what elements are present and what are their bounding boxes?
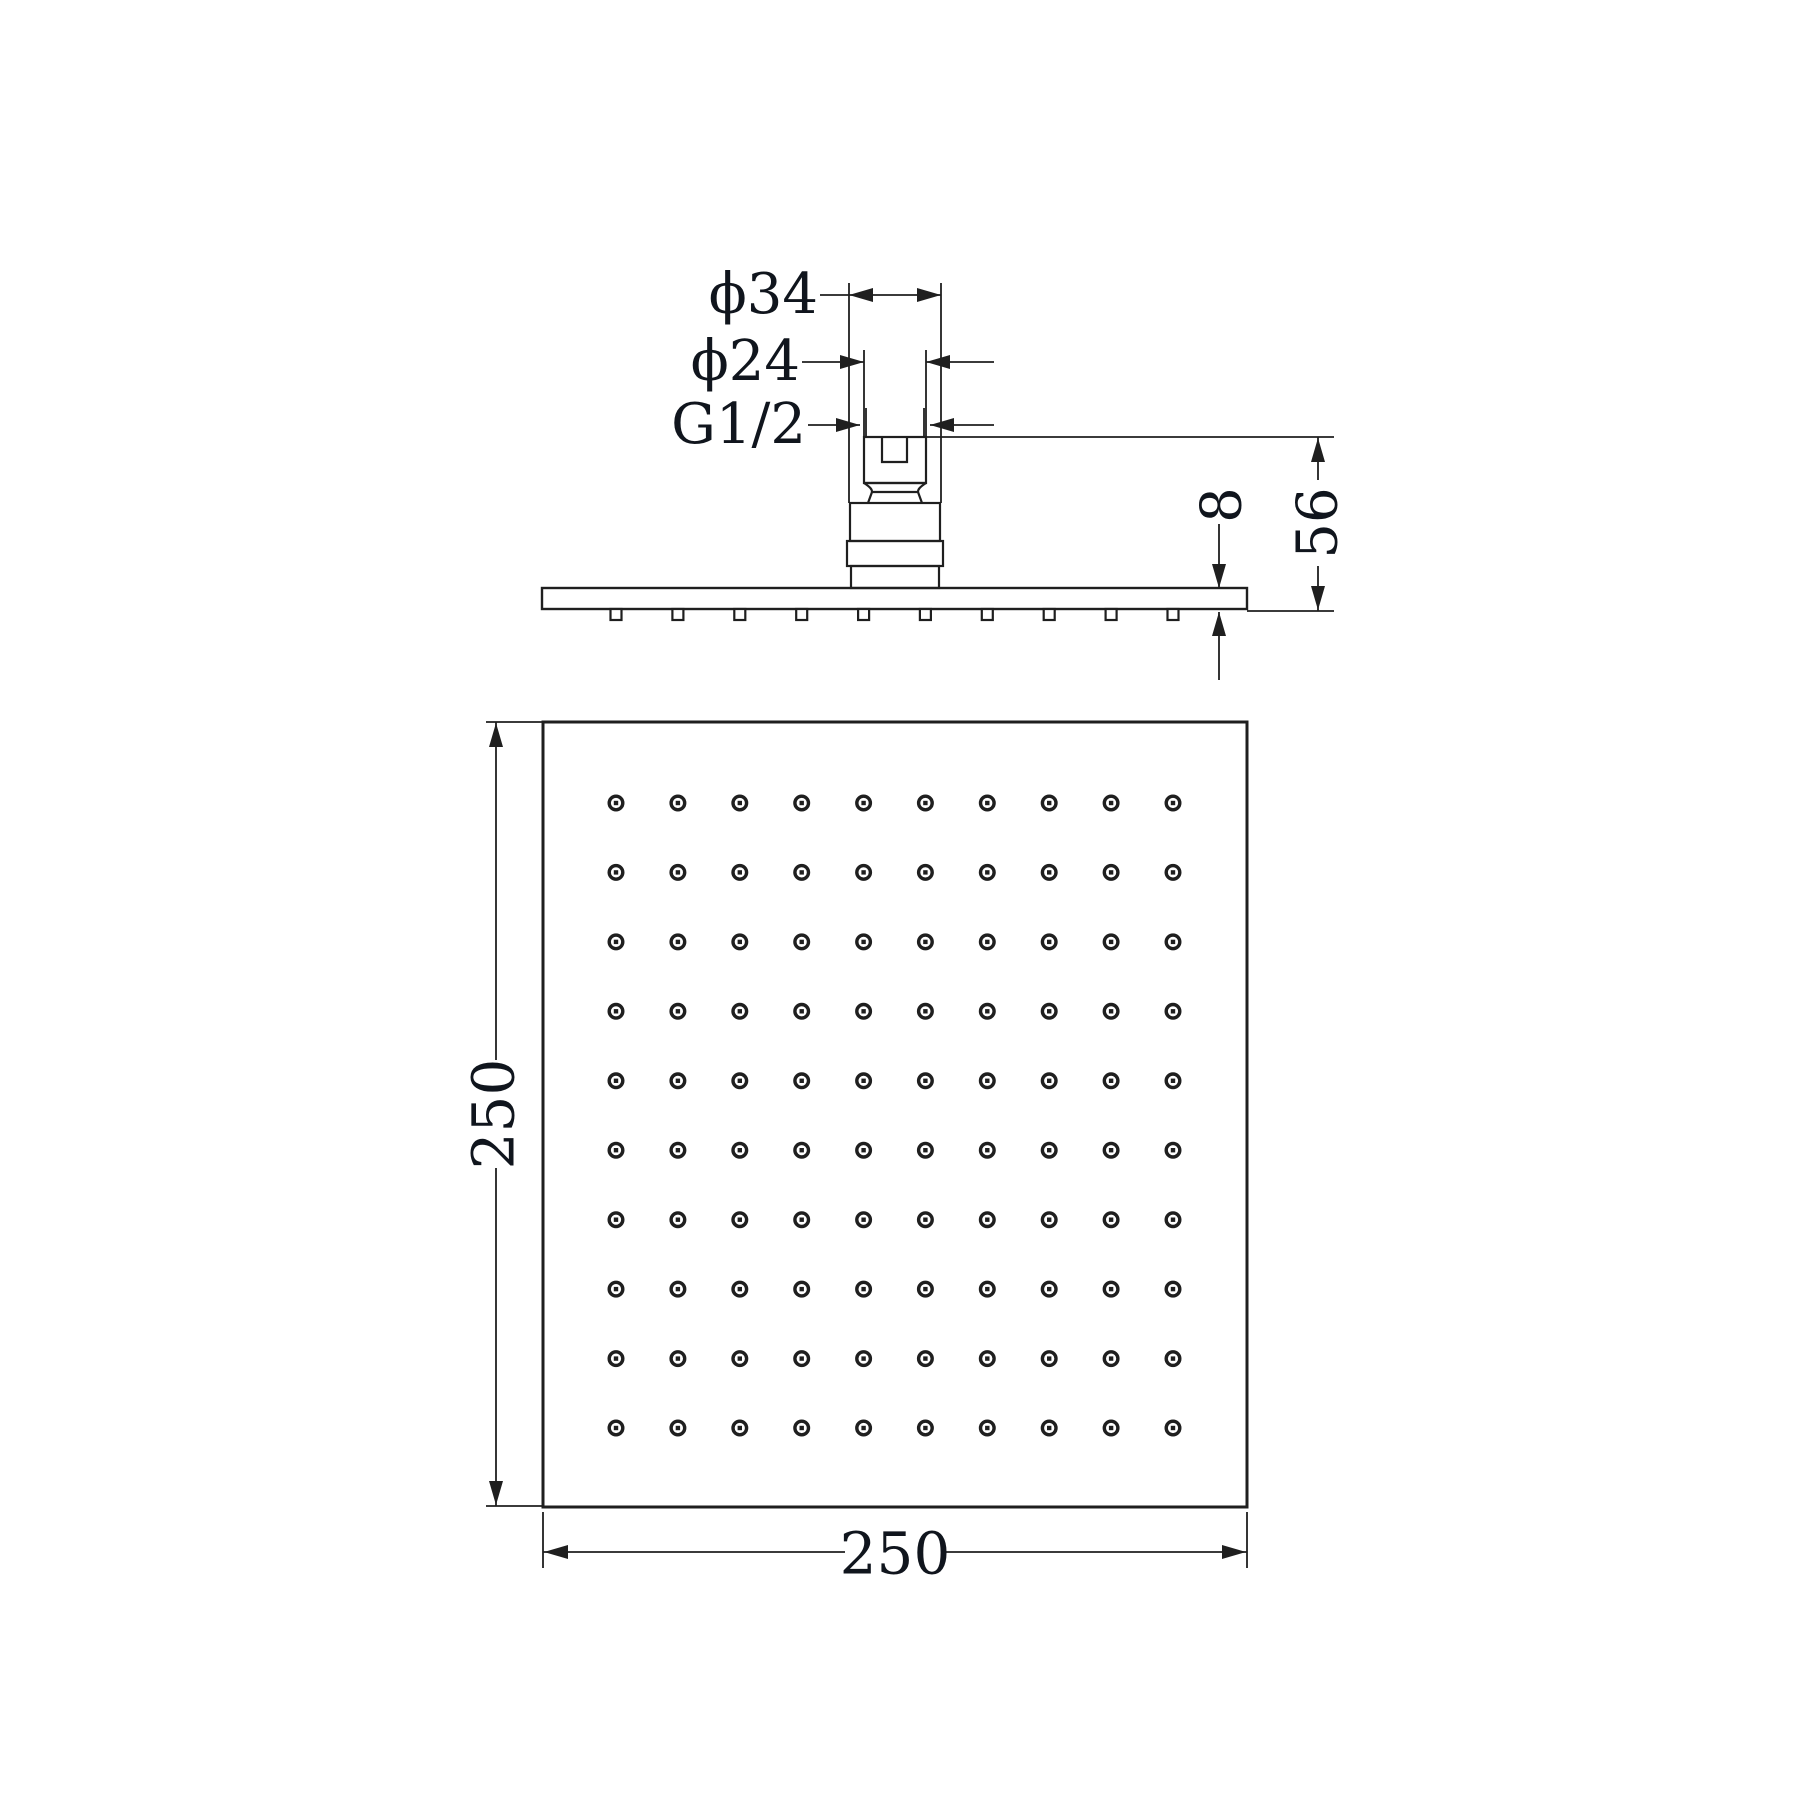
- spray-hole-center: [676, 1287, 680, 1291]
- spray-hole-center: [1109, 1009, 1113, 1013]
- spray-hole-center: [1171, 870, 1175, 874]
- arrow-right-icon: [1222, 1545, 1246, 1559]
- spray-hole-center: [676, 1009, 680, 1013]
- spray-hole-center: [1171, 1009, 1175, 1013]
- spray-hole-center: [614, 940, 618, 944]
- dim-thickness-8: [1212, 524, 1226, 680]
- arrow-up-icon: [1212, 612, 1226, 636]
- label-phi24: ϕ24: [691, 329, 800, 394]
- shower-plate-face: [543, 722, 1247, 1507]
- spray-hole-center: [1171, 940, 1175, 944]
- arrow-left-icon: [926, 355, 950, 369]
- spray-hole-center: [738, 940, 742, 944]
- spray-hole-center: [923, 801, 927, 805]
- spray-hole-center: [923, 1148, 927, 1152]
- connector-stem: [851, 566, 939, 588]
- arrow-right-icon: [840, 355, 864, 369]
- spray-hole-center: [1047, 1079, 1051, 1083]
- dim-height-56: [926, 437, 1343, 611]
- spray-hole-center: [1171, 1426, 1175, 1430]
- spray-hole-center: [1047, 1426, 1051, 1430]
- arrow-up-icon: [1311, 438, 1325, 462]
- spray-hole-center: [676, 1426, 680, 1430]
- spray-hole-center: [1109, 1356, 1113, 1360]
- dim-thread: [808, 408, 994, 437]
- spray-hole-center: [738, 1079, 742, 1083]
- spray-hole-center: [738, 1009, 742, 1013]
- spray-hole-center: [676, 1218, 680, 1222]
- spray-hole-center: [1047, 1009, 1051, 1013]
- spray-hole-center: [985, 1079, 989, 1083]
- spray-hole-center: [738, 1356, 742, 1360]
- connector-cup: [864, 437, 926, 483]
- spray-hole-center: [1171, 1218, 1175, 1222]
- spray-hole-center: [861, 1009, 865, 1013]
- spray-hole-center: [923, 1079, 927, 1083]
- spray-hole-center: [985, 801, 989, 805]
- spray-hole-center: [614, 1148, 618, 1152]
- nozzle-profile: [1168, 609, 1179, 620]
- label-thread: G1/2: [671, 392, 806, 457]
- spray-hole-center: [923, 940, 927, 944]
- spray-hole-center: [985, 870, 989, 874]
- nozzle-profile: [982, 609, 993, 620]
- spray-hole-center: [1047, 870, 1051, 874]
- spray-hole-center: [923, 870, 927, 874]
- spray-hole-grid: [609, 796, 1180, 1435]
- spray-hole-center: [1109, 1079, 1113, 1083]
- spray-hole-center: [800, 870, 804, 874]
- arrow-right-icon: [917, 288, 941, 302]
- shower-plate-profile: [542, 588, 1247, 609]
- spray-hole-center: [985, 1009, 989, 1013]
- spray-hole-center: [1047, 1148, 1051, 1152]
- spray-hole-center: [985, 1218, 989, 1222]
- spray-hole-center: [614, 801, 618, 805]
- inlet-connector: [847, 437, 943, 588]
- dimension-annotations: ϕ34 ϕ24 G1/2 8 56 250 250: [459, 262, 1350, 1587]
- spray-hole-center: [614, 1079, 618, 1083]
- dim-phi24: [802, 350, 994, 437]
- label-phi34: ϕ34: [709, 262, 818, 327]
- technical-drawing-canvas: ϕ34 ϕ24 G1/2 8 56 250 250: [0, 0, 1800, 1800]
- spray-hole-center: [1109, 1287, 1113, 1291]
- spray-hole-center: [985, 940, 989, 944]
- spray-hole-center: [800, 1426, 804, 1430]
- label-height-250: 250: [459, 1059, 527, 1170]
- spray-hole-center: [1047, 1287, 1051, 1291]
- spray-hole-center: [614, 1426, 618, 1430]
- spray-hole-center: [923, 1426, 927, 1430]
- spray-hole-center: [985, 1356, 989, 1360]
- spray-hole-center: [800, 940, 804, 944]
- spray-hole-center: [1171, 1148, 1175, 1152]
- connector-nut: [850, 503, 940, 541]
- spray-hole-center: [923, 1009, 927, 1013]
- spray-hole-center: [614, 1218, 618, 1222]
- spray-hole-center: [800, 1009, 804, 1013]
- spray-hole-center: [800, 801, 804, 805]
- label-width-250: 250: [840, 1519, 951, 1587]
- spray-hole-center: [676, 1079, 680, 1083]
- spray-hole-center: [676, 1148, 680, 1152]
- spray-hole-center: [985, 1287, 989, 1291]
- spray-hole-center: [985, 1148, 989, 1152]
- arrow-down-icon: [489, 1481, 503, 1505]
- arrow-left-icon: [544, 1545, 568, 1559]
- dim-phi34: [820, 283, 941, 503]
- spray-hole-center: [614, 1009, 618, 1013]
- arrow-left-icon: [930, 418, 954, 432]
- spray-hole-center: [1109, 870, 1113, 874]
- spray-hole-center: [738, 1148, 742, 1152]
- side-nozzle-row: [611, 609, 1179, 620]
- spray-hole-center: [1171, 1287, 1175, 1291]
- spray-hole-center: [1171, 1079, 1175, 1083]
- spray-hole-center: [676, 801, 680, 805]
- spray-hole-center: [985, 1426, 989, 1430]
- nozzle-profile: [734, 609, 745, 620]
- spray-hole-center: [800, 1287, 804, 1291]
- spray-hole-center: [1047, 801, 1051, 805]
- spray-hole-center: [738, 1218, 742, 1222]
- spray-hole-center: [738, 1426, 742, 1430]
- nozzle-profile: [1106, 609, 1117, 620]
- connector-socket-hole: [882, 437, 907, 462]
- spray-hole-center: [861, 1426, 865, 1430]
- spray-hole-center: [1047, 1218, 1051, 1222]
- arrow-down-icon: [1212, 564, 1226, 588]
- spray-hole-center: [614, 1287, 618, 1291]
- connector-ring: [847, 541, 943, 566]
- spray-hole-center: [738, 801, 742, 805]
- spray-hole-center: [1109, 801, 1113, 805]
- spray-hole-center: [1171, 1356, 1175, 1360]
- spray-hole-center: [614, 1356, 618, 1360]
- spray-hole-center: [676, 870, 680, 874]
- front-view: [543, 722, 1247, 1507]
- spray-hole-center: [738, 870, 742, 874]
- nozzle-profile: [858, 609, 869, 620]
- spray-hole-center: [923, 1356, 927, 1360]
- arrow-down-icon: [1311, 586, 1325, 610]
- spray-hole-center: [1109, 1218, 1113, 1222]
- spray-hole-center: [1109, 1148, 1113, 1152]
- spray-hole-center: [861, 1218, 865, 1222]
- nozzle-profile: [920, 609, 931, 620]
- spray-hole-center: [1047, 1356, 1051, 1360]
- spray-hole-center: [1109, 1426, 1113, 1430]
- spray-hole-center: [676, 1356, 680, 1360]
- arrow-left-icon: [849, 288, 873, 302]
- spray-hole-center: [614, 870, 618, 874]
- spray-hole-center: [861, 1356, 865, 1360]
- spray-hole-center: [861, 1148, 865, 1152]
- nozzle-profile: [796, 609, 807, 620]
- spray-hole-center: [800, 1079, 804, 1083]
- spray-hole-center: [861, 940, 865, 944]
- spray-hole-center: [861, 1079, 865, 1083]
- spray-hole-center: [676, 940, 680, 944]
- spray-hole-center: [861, 1287, 865, 1291]
- drawing-page: ϕ34 ϕ24 G1/2 8 56 250 250: [0, 0, 1800, 1800]
- side-view: [542, 437, 1247, 620]
- spray-hole-center: [923, 1218, 927, 1222]
- spray-hole-center: [1109, 940, 1113, 944]
- connector-waist: [864, 483, 926, 503]
- nozzle-profile: [672, 609, 683, 620]
- label-height-56: 56: [1286, 487, 1351, 558]
- label-thickness-8: 8: [1190, 487, 1255, 523]
- arrow-right-icon: [836, 418, 860, 432]
- spray-hole-center: [800, 1148, 804, 1152]
- spray-hole-center: [800, 1356, 804, 1360]
- spray-hole-center: [738, 1287, 742, 1291]
- spray-hole-center: [1171, 801, 1175, 805]
- spray-hole-center: [861, 870, 865, 874]
- spray-hole-center: [1047, 940, 1051, 944]
- spray-hole-center: [800, 1218, 804, 1222]
- spray-hole-center: [861, 801, 865, 805]
- nozzle-profile: [1044, 609, 1055, 620]
- arrow-up-icon: [489, 723, 503, 747]
- nozzle-profile: [611, 609, 622, 620]
- spray-hole-center: [923, 1287, 927, 1291]
